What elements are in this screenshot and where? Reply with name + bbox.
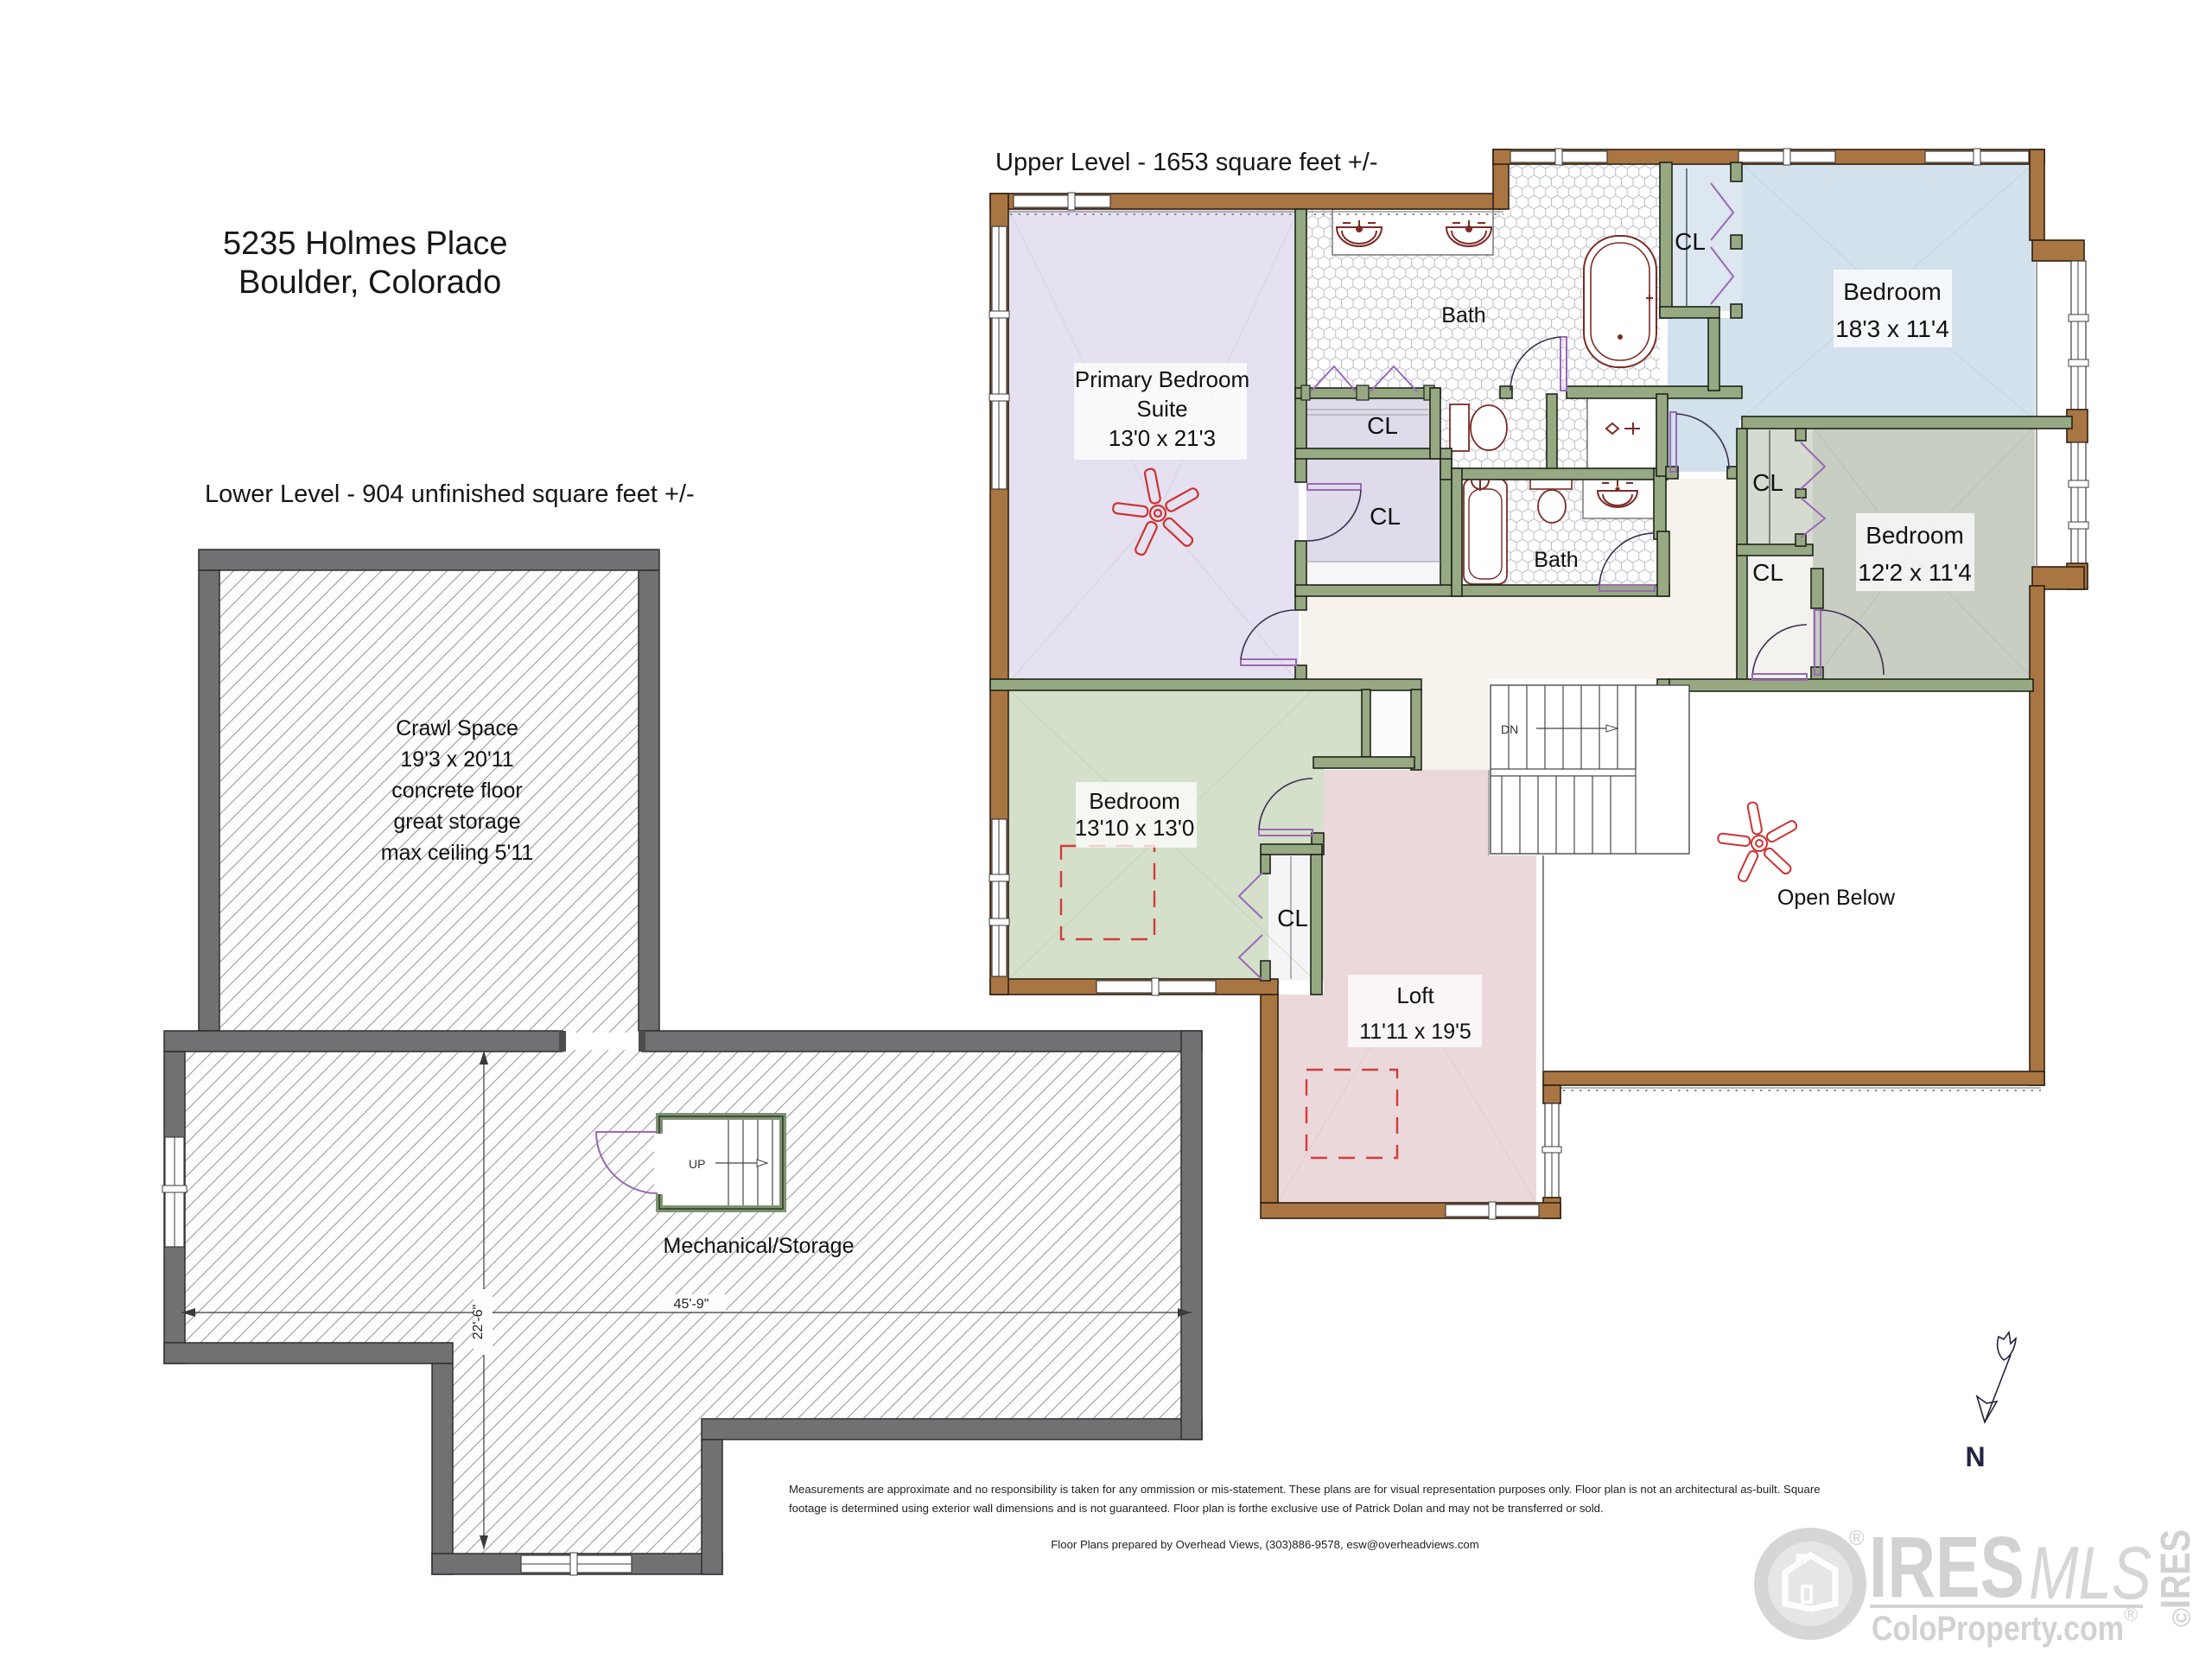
- svg-text:CL: CL: [1752, 559, 1783, 586]
- svg-text:Loft: Loft: [1396, 982, 1434, 1008]
- svg-text:Bedroom: Bedroom: [1089, 788, 1180, 814]
- svg-text:MLS: MLS: [2029, 1532, 2152, 1615]
- svg-text:Measurements are approximate: Measurements are approximate and no resp…: [789, 1483, 1821, 1496]
- svg-text:13'10 x 13'0: 13'10 x 13'0: [1075, 815, 1195, 841]
- svg-text:Open Below: Open Below: [1777, 886, 1896, 910]
- svg-text:19'3 x 20'11: 19'3 x 20'11: [400, 747, 513, 772]
- svg-text:Suite: Suite: [1136, 396, 1187, 422]
- svg-text:Bedroom: Bedroom: [1843, 278, 1942, 305]
- svg-text:max ceiling 5'11: max ceiling 5'11: [381, 841, 534, 865]
- svg-text:CL: CL: [1752, 469, 1783, 496]
- svg-text:N: N: [1965, 1441, 1985, 1472]
- svg-text:11'11 x 19'5: 11'11 x 19'5: [1359, 1020, 1471, 1044]
- svg-text:®: ®: [1849, 1527, 1865, 1550]
- svg-text:18'3 x 11'4: 18'3 x 11'4: [1835, 315, 1949, 342]
- svg-text:footage is determined using ex: footage is determined using exterior wal…: [789, 1502, 1604, 1515]
- svg-text:Bedroom: Bedroom: [1866, 522, 1964, 549]
- svg-text:CL: CL: [1367, 412, 1398, 439]
- svg-text:5235 Holmes Place: 5235 Holmes Place: [223, 226, 508, 262]
- svg-text:22'-6": 22'-6": [471, 1305, 486, 1340]
- svg-text:Lower Level - 904 unfinished s: Lower Level - 904 unfinished square feet…: [205, 480, 695, 508]
- svg-text:UP: UP: [689, 1157, 705, 1171]
- svg-text:®: ®: [2124, 1604, 2138, 1625]
- svg-text:45'-9": 45'-9": [674, 1297, 709, 1312]
- svg-text:Boulder, Colorado: Boulder, Colorado: [238, 264, 501, 301]
- svg-text:IRES: IRES: [2153, 1529, 2199, 1609]
- svg-text:CL: CL: [1370, 503, 1401, 530]
- svg-text:ColoProperty.com: ColoProperty.com: [1872, 1610, 2124, 1648]
- svg-text:Bath: Bath: [1441, 303, 1485, 327]
- svg-text:Mechanical/Storage: Mechanical/Storage: [664, 1234, 855, 1258]
- svg-text:DN: DN: [1501, 722, 1518, 736]
- svg-text:great storage: great storage: [393, 810, 520, 834]
- svg-text:CL: CL: [1675, 228, 1706, 255]
- svg-text:CL: CL: [1277, 905, 1308, 931]
- svg-text:Crawl Space: Crawl Space: [396, 716, 518, 741]
- svg-text:13'0 x 21'3: 13'0 x 21'3: [1109, 425, 1216, 451]
- svg-text:Upper Level - 1653 square feet: Upper Level - 1653 square feet +/-: [995, 149, 1378, 176]
- svg-text:concrete floor: concrete floor: [391, 779, 522, 803]
- svg-text:Floor Plans prepared by Overhe: Floor Plans prepared by Overhead Views, …: [1051, 1538, 1478, 1551]
- svg-text:Primary Bedroom: Primary Bedroom: [1075, 366, 1249, 392]
- svg-text:12'2 x 11'4: 12'2 x 11'4: [1858, 559, 1972, 586]
- svg-text:©: ©: [2168, 1608, 2196, 1627]
- svg-text:Bath: Bath: [1534, 548, 1578, 572]
- svg-text:IRES: IRES: [1869, 1519, 2024, 1616]
